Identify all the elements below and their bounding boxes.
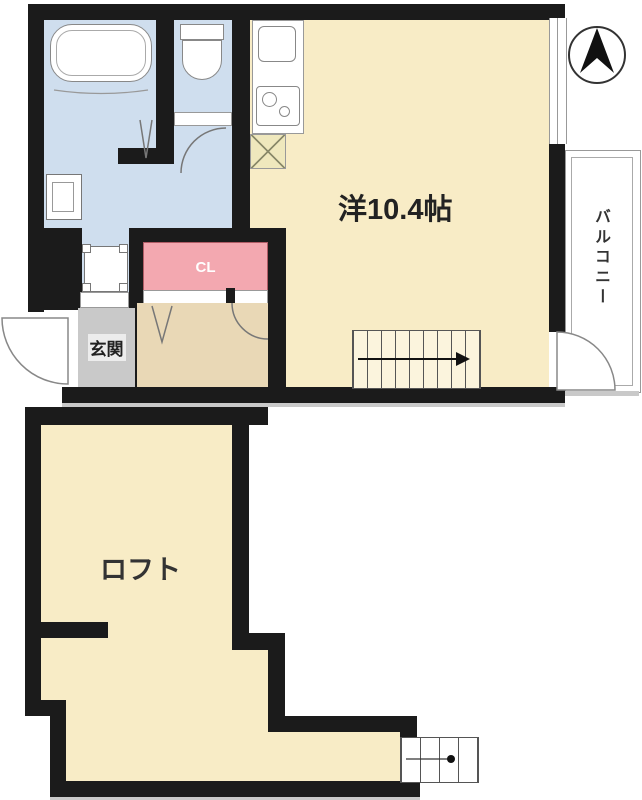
- wall-right-mid: [549, 142, 565, 332]
- toilet-bowl: [182, 40, 222, 80]
- loft-wall-step2: [268, 716, 417, 732]
- entrance-label: 玄関: [88, 334, 126, 361]
- kitchen-sink: [258, 26, 296, 62]
- pan-corner-tab: [119, 244, 128, 253]
- closet: CL: [143, 242, 268, 292]
- stove-burner-small: [279, 106, 290, 117]
- loft-wall-left: [25, 407, 41, 716]
- washbasin-inner: [52, 182, 74, 212]
- pan-corner-tab: [82, 244, 91, 253]
- window-right-wall: [549, 18, 567, 144]
- staircase: [352, 330, 481, 389]
- north-arrow-icon: [580, 28, 614, 73]
- closet-door-divider: [226, 288, 235, 304]
- loft-wall-bottom: [50, 781, 420, 797]
- pan-corner-tab: [119, 283, 128, 292]
- shadow-floor1: [62, 403, 565, 407]
- loft-ladder: [400, 737, 479, 783]
- loft-wall-top: [25, 407, 249, 425]
- refrigerator-space: [250, 134, 286, 169]
- toilet-tank: [180, 24, 224, 40]
- loft-wall-right-upper: [232, 425, 249, 650]
- wall-left: [28, 4, 44, 312]
- washroom-door-strip: [80, 292, 129, 308]
- main-room-label: 洋10.4帖: [338, 186, 452, 228]
- wall-bath-toilet: [156, 20, 174, 162]
- wall-toilet-kitchen: [232, 4, 250, 232]
- corridor-floor: [137, 303, 268, 387]
- loft-label: ロフト: [100, 548, 181, 587]
- balcony-label: バルコニー: [588, 208, 612, 308]
- shadow-balcony: [565, 391, 639, 396]
- closet-label: CL: [196, 259, 216, 276]
- kitchen-stove: [256, 86, 300, 126]
- wall-bath-wash-stub: [118, 148, 174, 164]
- entrance-door-swing: [2, 318, 68, 384]
- loft-floor-c: [232, 650, 268, 732]
- loft-floor-d: [268, 732, 400, 781]
- entrance-hall: 玄関: [78, 308, 135, 387]
- wall-top: [28, 4, 565, 20]
- loft-wall-inner-stub: [41, 622, 108, 638]
- compass-circle: [569, 27, 625, 83]
- pan-corner-tab: [82, 283, 91, 292]
- closet-door-strip: [143, 290, 268, 304]
- stove-burner-large: [262, 92, 277, 107]
- wall-block-left: [44, 228, 82, 310]
- floor-plan: CL 玄関 バルコニー 洋10.4帖 ロフト: [0, 0, 642, 800]
- toilet-door-lintel: [174, 112, 232, 126]
- bathtub-inner: [56, 30, 146, 76]
- wall-bottom-floor1: [62, 387, 565, 403]
